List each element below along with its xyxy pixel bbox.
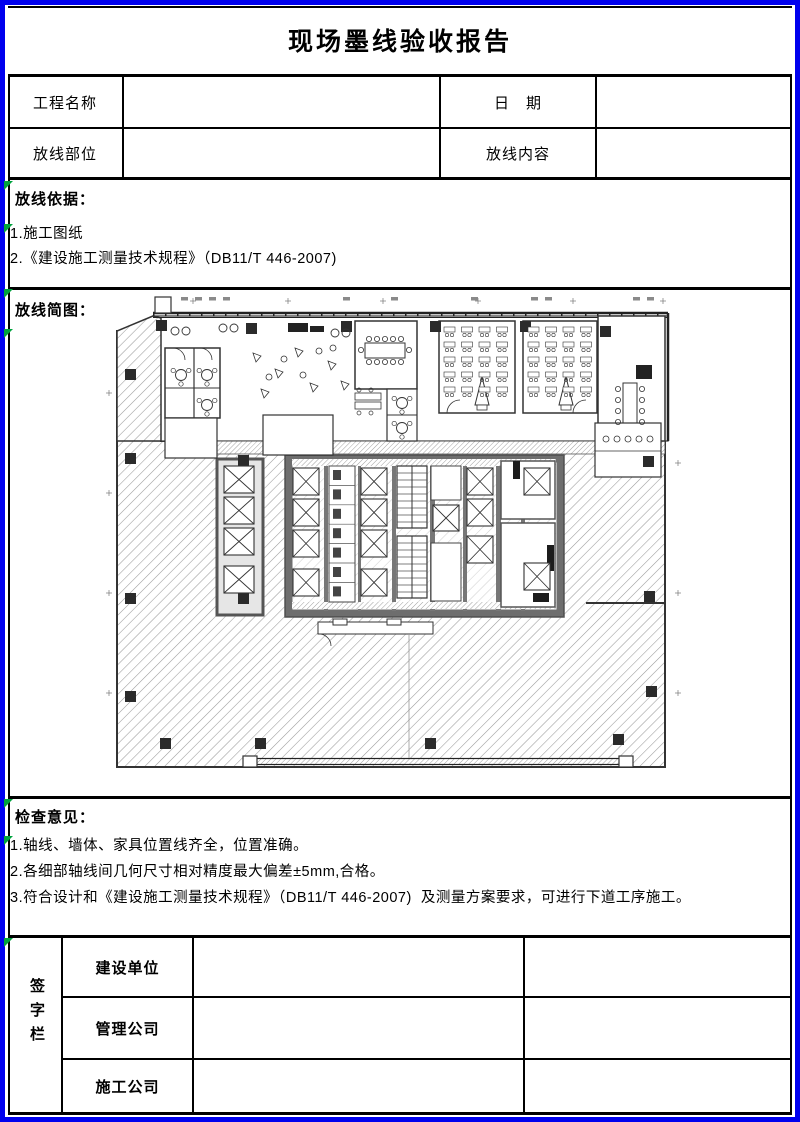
date-label: 日 期 [441, 77, 595, 127]
layout-part-label: 放线部位 [8, 129, 122, 177]
project-name-value-cell[interactable] [124, 77, 439, 127]
basis-item: 2.《建设施工测量技术规程》（DB11/T 446-2007) [10, 247, 337, 268]
green-corner-marker-icon [4, 836, 13, 845]
signature-side-label: 签字栏 [26, 978, 47, 1050]
green-corner-marker-icon [4, 181, 13, 190]
acceptance-report-page: { "page": { "title": "现场墨线验收报告", "border… [0, 0, 800, 1122]
frame-line [8, 177, 792, 180]
sketch-heading: 放线简图： [15, 299, 95, 320]
date-value-cell[interactable] [597, 77, 790, 127]
green-corner-marker-icon [4, 799, 13, 808]
management-company-date-cell[interactable] [525, 998, 790, 1058]
layout-content-value-cell[interactable] [597, 129, 790, 177]
opinion-item: 1.轴线、墙体、家具位置线齐全，位置准确。 [10, 834, 308, 855]
frame-line [790, 74, 792, 1115]
construction-company-label: 施工公司 [63, 1060, 192, 1112]
basis-heading: 放线依据： [15, 188, 95, 209]
management-company-sign-cell[interactable] [194, 998, 523, 1058]
opinion-item: 3.符合设计和《建设施工测量技术规程》（DB11/T 446-2007) 及测量… [10, 886, 691, 907]
floor-plan-sketch [103, 293, 693, 775]
green-corner-marker-icon [4, 938, 13, 947]
construction-unit-sign-cell[interactable] [194, 938, 523, 996]
frame-line [8, 1112, 792, 1115]
page-title: 现场墨线验收报告 [8, 22, 792, 58]
layout-content-label: 放线内容 [441, 129, 595, 177]
green-corner-marker-icon [4, 329, 13, 338]
opinion-item: 2.各细部轴线间几何尺寸相对精度最大偏差±5mm,合格。 [10, 860, 385, 881]
green-corner-marker-icon [4, 224, 13, 233]
opinion-heading: 检查意见： [15, 806, 95, 827]
layout-part-value-cell[interactable] [124, 129, 439, 177]
construction-company-date-cell[interactable] [525, 1060, 790, 1112]
frame-line [8, 6, 792, 8]
management-company-label: 管理公司 [63, 998, 192, 1058]
frame-line [8, 287, 792, 290]
construction-unit-label: 建设单位 [63, 938, 192, 996]
construction-company-sign-cell[interactable] [194, 1060, 523, 1112]
basis-item: 1.施工图纸 [10, 222, 83, 243]
frame-line [8, 796, 792, 799]
green-corner-marker-icon [4, 289, 13, 298]
project-name-label: 工程名称 [8, 77, 122, 127]
construction-unit-date-cell[interactable] [525, 938, 790, 996]
plan-static-layer [117, 297, 668, 767]
